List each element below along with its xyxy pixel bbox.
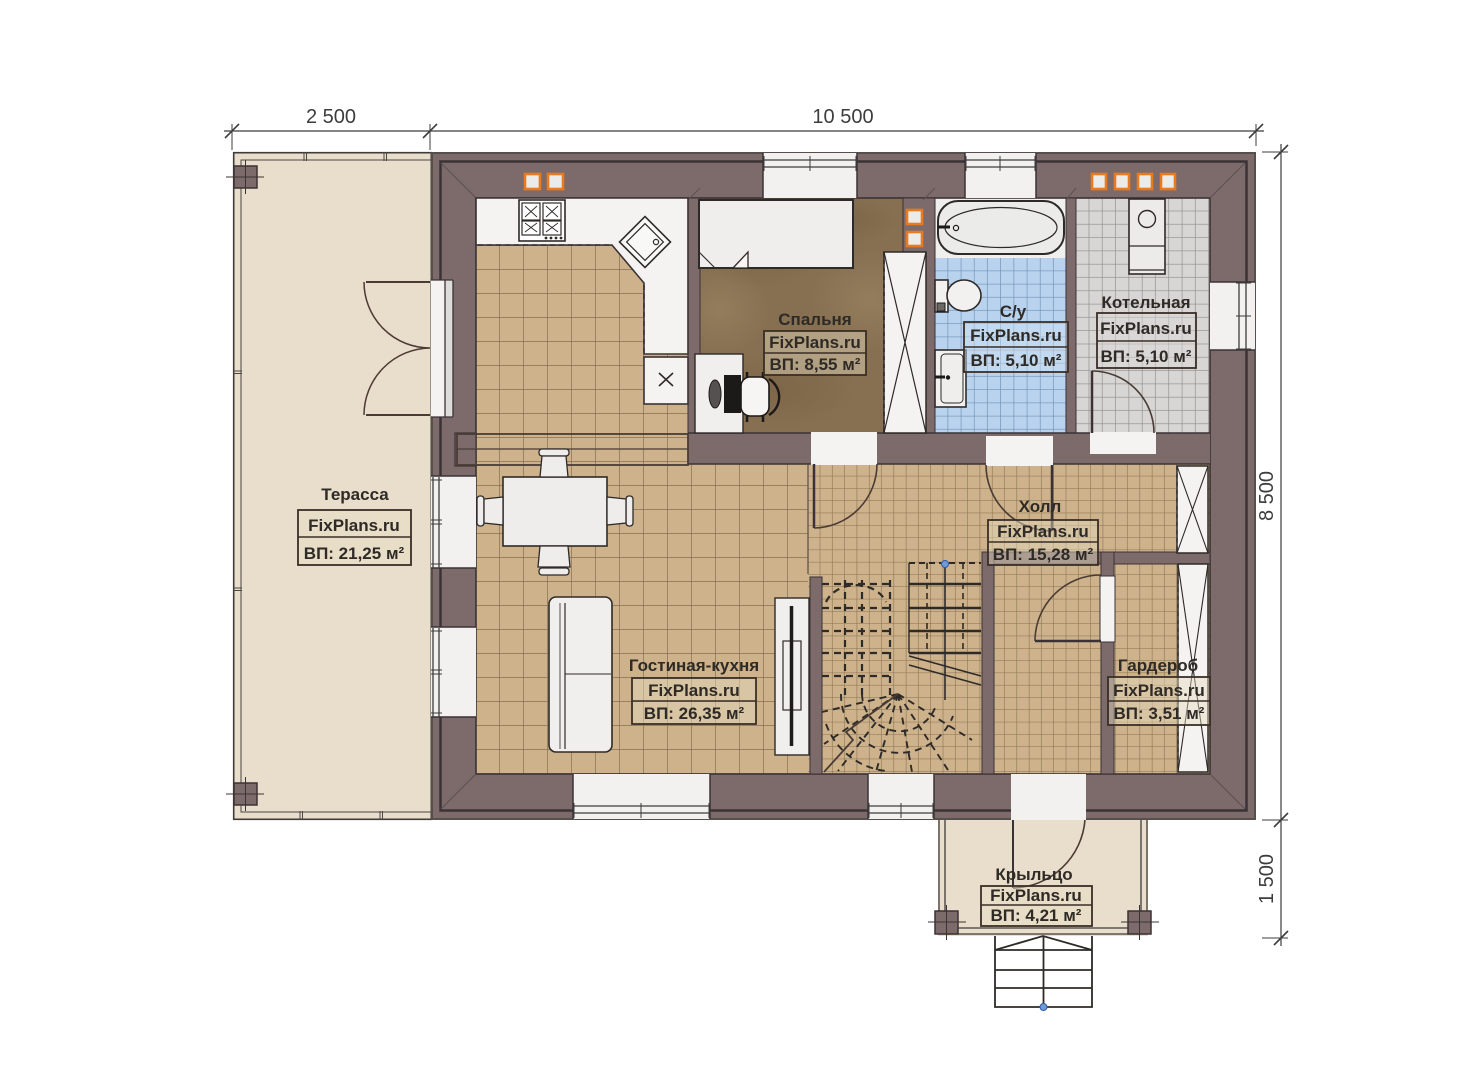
svg-text:ВП: 5,10 м²: ВП: 5,10 м² xyxy=(971,351,1062,370)
svg-text:Холл: Холл xyxy=(1019,497,1062,516)
svg-text:FixPlans.ru: FixPlans.ru xyxy=(970,326,1062,345)
svg-text:1 500: 1 500 xyxy=(1256,854,1278,904)
svg-text:ВП: 5,10 м²: ВП: 5,10 м² xyxy=(1101,347,1192,366)
svg-text:ВП: 8,55 м²: ВП: 8,55 м² xyxy=(770,355,861,374)
svg-text:FixPlans.ru: FixPlans.ru xyxy=(769,333,861,352)
svg-text:8 500: 8 500 xyxy=(1256,471,1278,521)
svg-text:FixPlans.ru: FixPlans.ru xyxy=(648,681,740,700)
svg-text:Котельная: Котельная xyxy=(1101,293,1190,312)
svg-text:10 500: 10 500 xyxy=(812,106,873,128)
svg-text:Спальня: Спальня xyxy=(778,310,851,329)
svg-text:FixPlans.ru: FixPlans.ru xyxy=(997,522,1089,541)
svg-text:FixPlans.ru: FixPlans.ru xyxy=(1113,681,1205,700)
svg-text:Крыльцо: Крыльцо xyxy=(995,865,1072,884)
svg-text:ВП: 3,51 м²: ВП: 3,51 м² xyxy=(1114,704,1205,723)
svg-text:ВП: 26,35 м²: ВП: 26,35 м² xyxy=(644,704,745,723)
svg-text:Гардероб: Гардероб xyxy=(1118,656,1198,675)
svg-text:С/у: С/у xyxy=(1000,302,1027,321)
svg-text:FixPlans.ru: FixPlans.ru xyxy=(1100,319,1192,338)
svg-text:FixPlans.ru: FixPlans.ru xyxy=(308,516,400,535)
svg-text:FixPlans.ru: FixPlans.ru xyxy=(990,886,1082,905)
svg-text:ВП: 15,28 м²: ВП: 15,28 м² xyxy=(993,545,1094,564)
svg-text:Терасса: Терасса xyxy=(321,485,389,504)
svg-text:Гостиная-кухня: Гостиная-кухня xyxy=(629,656,759,675)
svg-text:2 500: 2 500 xyxy=(306,106,356,128)
svg-text:ВП: 21,25 м²: ВП: 21,25 м² xyxy=(304,544,405,563)
svg-text:ВП: 4,21 м²: ВП: 4,21 м² xyxy=(991,906,1082,925)
